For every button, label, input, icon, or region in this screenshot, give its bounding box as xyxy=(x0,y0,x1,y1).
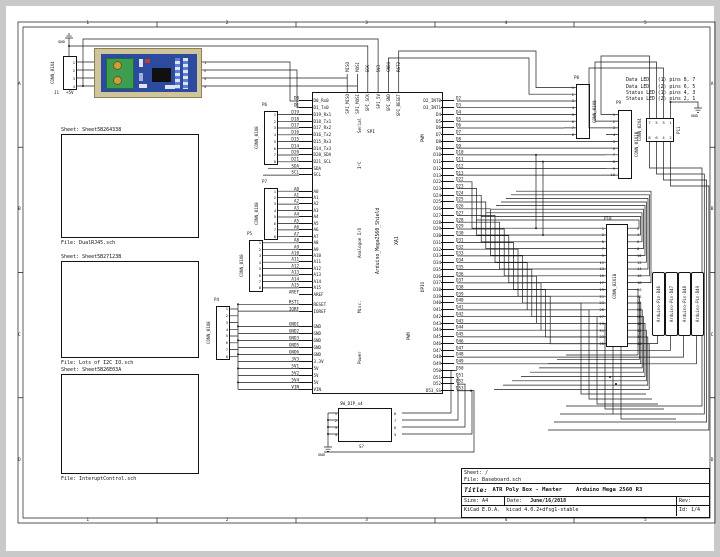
pin-number: 4 xyxy=(204,82,212,90)
pin-stub xyxy=(299,134,312,135)
pin-number: 8 xyxy=(607,158,615,165)
pin-stub xyxy=(299,340,312,341)
p7-ref: P7 xyxy=(262,180,267,185)
schematic-sheet: 12345 12345 ABCD ABCD 1234 1234 CONN_01X… xyxy=(6,6,714,551)
p11-ref: P11 xyxy=(676,118,681,142)
module-resistor-bank xyxy=(183,58,188,89)
pin-stub xyxy=(299,389,312,390)
pin-name: D1_Tx0 xyxy=(312,105,329,110)
net-label: D14 xyxy=(249,143,299,148)
net-label: D28 xyxy=(454,217,464,222)
dip-ref: S? xyxy=(359,445,364,450)
p9-pins: 12345678910 xyxy=(607,111,615,178)
net-label: D4 xyxy=(454,110,461,115)
pin-name: D32 xyxy=(404,247,441,252)
global-label-d49[interactable]: Arduino-Pin-D49 xyxy=(691,272,704,336)
pin-name: D27 xyxy=(404,213,441,218)
global-label-d47[interactable]: Arduino-Pin-D47 xyxy=(665,272,678,336)
pin-number: 2 xyxy=(220,312,228,319)
pin-stub xyxy=(299,311,312,312)
grid-row-label: D xyxy=(711,398,714,523)
pin-name: D0_Rx0 xyxy=(312,98,329,103)
tb-title-label: Title: xyxy=(464,486,487,494)
tb-rev: Rev: xyxy=(677,497,709,506)
pin-stub xyxy=(441,201,454,202)
net-label: A9 xyxy=(249,244,299,249)
net-label: D39 xyxy=(454,291,464,296)
pin-number: 18 xyxy=(637,279,645,286)
p10-ref: P10 xyxy=(604,217,612,222)
net-label: D36 xyxy=(454,271,464,276)
pin-name: A9 xyxy=(312,247,319,252)
pin-stub xyxy=(441,296,454,297)
pin-name: D53_SS xyxy=(404,388,441,393)
net-label: D47 xyxy=(454,345,464,350)
grid-col-label: 1 xyxy=(18,518,157,523)
pin-number: 3 xyxy=(607,124,615,131)
net-label: MISO xyxy=(345,62,350,72)
grid-col-label: 3 xyxy=(297,21,436,26)
pin-name: D16_Tx2 xyxy=(312,132,331,137)
p11-bottom-pins: 8642 xyxy=(646,135,674,140)
grid-col-label: 5 xyxy=(576,518,715,523)
pin-stub xyxy=(299,268,312,269)
pin-stub xyxy=(299,197,312,198)
connector-p9[interactable] xyxy=(618,110,632,179)
net-label: D29 xyxy=(454,224,464,229)
pin-name: D47 xyxy=(404,348,441,353)
pin-number: 24 xyxy=(637,300,645,307)
pin-number: 3 xyxy=(329,424,337,431)
pin-number: 2 xyxy=(607,118,615,125)
pin-number: 3 xyxy=(596,232,604,239)
pin-number: 5 xyxy=(596,238,604,245)
net-label: D16 xyxy=(249,130,299,135)
grid-row-label: A xyxy=(18,22,21,147)
pin-number: 7 xyxy=(596,245,604,252)
pin-stub xyxy=(299,255,312,256)
pin-name: 5V xyxy=(312,373,319,378)
pin-number: 3 xyxy=(67,74,75,82)
net-label: SCL xyxy=(249,170,299,175)
pin-stub xyxy=(299,354,312,355)
module-right-pin-numbers: 1234 xyxy=(204,58,212,90)
sheet-i2c-io[interactable] xyxy=(61,261,199,358)
net-label: SCK xyxy=(365,65,370,72)
pin-stub xyxy=(441,114,454,115)
pin-stub xyxy=(441,343,454,344)
pin-number: 32 xyxy=(637,327,645,334)
net-label: MOSI xyxy=(355,62,360,72)
module-part xyxy=(145,59,150,63)
net-label: D12 xyxy=(454,163,464,168)
tb-sheet: Sheet: / xyxy=(462,469,709,476)
pin-name: D21_SCL xyxy=(312,159,331,164)
pin-stub xyxy=(441,161,454,162)
grid-row-label: A xyxy=(711,22,714,147)
pin-number: 7 xyxy=(394,417,402,424)
net-label: GND3 xyxy=(249,335,299,340)
pin-stub xyxy=(299,121,312,122)
net-label: D49 xyxy=(454,359,464,364)
pin-stub xyxy=(299,274,312,275)
pin-stub xyxy=(441,269,454,270)
pin-number: 31 xyxy=(596,327,604,334)
pin-number: 11 xyxy=(596,259,604,266)
grid-rows-right: ABCD xyxy=(711,22,714,523)
arduino-analog-pins: A0A0A1A1A2A2A3A3A4A4A5A5A6A6A7A7A8A8A9A9… xyxy=(249,188,324,297)
pin-name: 3.3V xyxy=(312,359,324,364)
tb-subtitle: Arduino Mega 2560 R3 xyxy=(576,487,642,493)
dip-right-pins: 8765 xyxy=(394,410,402,438)
pin-name: D24 xyxy=(404,193,441,198)
spi-pin-names: SPI_MISOSPI_MOSISPI_SCKSPI_5VSPI_GNDSPI_… xyxy=(342,94,404,128)
pin-name: A14 xyxy=(312,279,321,284)
pin-name: D11 xyxy=(404,159,441,164)
j1-pin-numbers: 1234 xyxy=(67,58,75,90)
pin-number: 4 xyxy=(637,232,645,239)
pin-name: D33 xyxy=(404,253,441,258)
net-label: A10 xyxy=(249,251,299,256)
net-label: A1 xyxy=(249,193,299,198)
arduino-serial-pins: D0D0_Rx0D1D1_Tx0D19D19_Rx1D18D18_Tx1D17D… xyxy=(249,98,331,152)
pin-stub xyxy=(299,100,312,101)
net-label: D1 xyxy=(249,103,299,108)
pin-stub xyxy=(299,375,312,376)
grid-row-label: B xyxy=(711,147,714,272)
p8-ref: P8 xyxy=(574,76,579,81)
pin-stub xyxy=(299,361,312,362)
net-label: D19 xyxy=(249,110,299,115)
net-label: D43 xyxy=(454,318,464,323)
dip-left-pins: 1234 xyxy=(329,410,337,438)
dip-switch[interactable] xyxy=(338,408,392,442)
pin-number: 9 xyxy=(596,252,604,259)
net-label: GND4 xyxy=(386,62,391,72)
dip-value: SW_DIP_x4 xyxy=(340,402,363,407)
net-label: 5V3 xyxy=(376,65,381,72)
pin-name: A3 xyxy=(312,208,319,213)
pin-name: A13 xyxy=(312,272,321,277)
pin-stub xyxy=(299,203,312,204)
led-notes: Data LED (1) pins 8, 7Data LED (2) pins … xyxy=(626,59,695,104)
grid-col-label: 4 xyxy=(436,518,575,523)
sheet-file: File: DualRJ45.sch xyxy=(61,240,115,246)
pin-stub xyxy=(299,326,312,327)
pin-number: 4 xyxy=(607,131,615,138)
pin-number: 6 xyxy=(607,145,615,152)
pin-stub xyxy=(299,304,312,305)
pin-number: 10 xyxy=(637,252,645,259)
pin-name: D29 xyxy=(404,226,441,231)
tb-kicad: KiCad E.D.A. kicad 4.0.2+dfsg1-stable xyxy=(462,506,677,516)
pin-stub xyxy=(441,195,454,196)
pin-name: A0 xyxy=(312,189,319,194)
net-label: D25 xyxy=(454,197,464,202)
net-label: IORF xyxy=(249,306,299,311)
pin-number: 28 xyxy=(637,313,645,320)
pin-stub xyxy=(441,350,454,351)
pin-number: 4 xyxy=(566,104,574,111)
net-label: GND5 xyxy=(249,342,299,347)
pin-number: 4 xyxy=(220,326,228,333)
pin-number: 4 xyxy=(329,431,337,438)
label-text: Arduino-Pin-D46 xyxy=(656,286,661,322)
pin-stub xyxy=(441,175,454,176)
pin-stub xyxy=(441,208,454,209)
pin-name: D48 xyxy=(404,354,441,359)
pin-number: 25 xyxy=(596,306,604,313)
pin-stub xyxy=(299,382,312,383)
pin-stub xyxy=(299,229,312,230)
label-text: Arduino-Pin-D49 xyxy=(695,286,700,322)
net-label: A6 xyxy=(249,225,299,230)
pin-name: D17_Rx2 xyxy=(312,125,331,130)
net-label: D20 xyxy=(249,150,299,155)
pin-name: GND xyxy=(312,345,321,350)
j1-ref: J1 xyxy=(54,91,59,96)
p11-top-pins: 7531 xyxy=(646,120,674,125)
grid-cols-top: 12345 xyxy=(18,21,715,26)
p8-pins: 12345678 xyxy=(566,84,574,138)
pin-name: D3_INT1 xyxy=(404,105,441,110)
grid-col-label: 4 xyxy=(436,21,575,26)
sheet-name: Sheet: Sheet5B264338 xyxy=(61,127,121,133)
grid-col-label: 3 xyxy=(297,518,436,523)
pin-name: SCL xyxy=(312,172,321,177)
grid-col-label: 2 xyxy=(157,21,296,26)
pin-number: 6 xyxy=(566,118,574,125)
pin-name: VIN xyxy=(312,387,321,392)
group-misc: Misc. xyxy=(357,298,362,316)
pin-stub xyxy=(299,210,312,211)
net-label: D33 xyxy=(454,251,464,256)
net-label: A3 xyxy=(249,206,299,211)
net-label: AREF xyxy=(249,289,299,294)
note-line: Status LED (2) pins 2, 1 xyxy=(626,97,695,103)
grid-col-label: 2 xyxy=(157,518,296,523)
pin-stub xyxy=(299,347,312,348)
pin-name: D22 xyxy=(404,179,441,184)
net-label: D10 xyxy=(454,150,464,155)
sheet-interrupt-control[interactable] xyxy=(61,374,199,474)
pin-stub xyxy=(441,127,454,128)
pin-number: 17 xyxy=(596,279,604,286)
pin-number: 23 xyxy=(596,300,604,307)
pin-name: SDA xyxy=(312,166,321,171)
pin-number: 5 xyxy=(653,120,660,125)
pin-number: 7 xyxy=(646,120,653,125)
net-label: D3 xyxy=(454,103,461,108)
net-label: D8 xyxy=(454,136,461,141)
pin-stub xyxy=(299,249,312,250)
kicad-canvas: 12345 12345 ABCD ABCD 1234 1234 CONN_01X… xyxy=(0,0,720,557)
p8-value: CONN_01X8 xyxy=(592,84,597,139)
pin-name: D34 xyxy=(404,260,441,265)
pin-number: 20 xyxy=(637,286,645,293)
grid-rows-left: ABCD xyxy=(18,22,21,523)
pin-number: 1 xyxy=(607,111,615,118)
pin-number: 5 xyxy=(394,431,402,438)
tb-file: File: Baseboard.sch xyxy=(462,476,709,484)
pin-number: 8 xyxy=(646,135,653,140)
pin-name: A6 xyxy=(312,227,319,232)
pin-name: IOREF xyxy=(312,309,326,314)
grid-row-label: C xyxy=(18,273,21,398)
global-label-d46[interactable]: Arduino-Pin-D46 xyxy=(652,272,665,336)
grid-col-label: 1 xyxy=(18,21,157,26)
net-label: D41 xyxy=(454,305,464,310)
pin-number: 22 xyxy=(637,293,645,300)
connector-p10[interactable] xyxy=(606,224,628,347)
module-resistor-bank xyxy=(175,58,180,89)
rs485-module-image[interactable] xyxy=(94,48,202,98)
pin-number: 1 xyxy=(566,84,574,91)
net-label: D0 xyxy=(249,96,299,101)
net-label: D31 xyxy=(454,237,464,242)
spi-group-label: SPI xyxy=(366,130,376,135)
net-label: D2 xyxy=(454,96,461,101)
pin-name: D28 xyxy=(404,220,441,225)
pin-stub xyxy=(299,168,312,169)
pin-stub xyxy=(441,323,454,324)
pin-stub xyxy=(441,215,454,216)
sheet-name: Sheet: Sheet5B27123B xyxy=(61,254,121,260)
module-part xyxy=(165,85,175,89)
pin-name: D10 xyxy=(404,152,441,157)
pin-number: 26 xyxy=(637,306,645,313)
pin-stub xyxy=(441,242,454,243)
pin-number: 30 xyxy=(637,320,645,327)
pin-number: 3 xyxy=(566,98,574,105)
pin-number: 9 xyxy=(607,165,615,172)
pin-number: 6 xyxy=(637,238,645,245)
pin-stub xyxy=(441,363,454,364)
pin-number: 29 xyxy=(596,320,604,327)
pin-stub xyxy=(441,309,454,310)
pin-name: D4 xyxy=(404,112,441,117)
pin-stub xyxy=(441,383,454,384)
pin-number: 14 xyxy=(637,266,645,273)
pin-number: 8 xyxy=(637,245,645,252)
net-label: A13 xyxy=(249,270,299,275)
net-label: D50 xyxy=(454,365,464,370)
pin-number: 3 xyxy=(660,120,667,125)
net-label: D13 xyxy=(454,170,464,175)
connector-p8[interactable] xyxy=(576,84,590,139)
group-pwm2: PWM xyxy=(406,326,411,346)
pin-name: A1 xyxy=(312,195,319,200)
pin-stub xyxy=(441,168,454,169)
pin-name: RESET xyxy=(312,302,326,307)
net-label: A4 xyxy=(249,212,299,217)
pin-name: D25 xyxy=(404,199,441,204)
gnd-label: GND xyxy=(318,453,325,457)
arduino-right-pins: D2_INT0D2D3_INT1D3D4D4D5D5D6D6D7D7D8D8D9… xyxy=(404,98,464,394)
pin-number: 34 xyxy=(637,334,645,341)
pin-name: D13 xyxy=(404,173,441,178)
net-label: D6 xyxy=(454,123,461,128)
net-label: GND1 xyxy=(249,321,299,326)
net-label: D48 xyxy=(454,352,464,357)
pin-stub xyxy=(299,161,312,162)
pin-stub xyxy=(441,316,454,317)
group-serial: Serial xyxy=(357,106,362,144)
p4-pins: 12345678 xyxy=(220,306,228,360)
pin-stub xyxy=(441,370,454,371)
pin-number: 5 xyxy=(220,333,228,340)
pin-stub xyxy=(299,127,312,128)
net-label: A5 xyxy=(249,218,299,223)
arduino-ref: XA1 xyxy=(395,221,400,261)
pin-number: 2 xyxy=(566,91,574,98)
net-label: D42 xyxy=(454,312,464,317)
pin-stub xyxy=(441,228,454,229)
pin-name: SPI_5V xyxy=(376,94,381,109)
pin-name: D20_SDA xyxy=(312,152,331,157)
j1-value: CONN_01X4 xyxy=(50,56,55,90)
module-part xyxy=(139,59,143,67)
pin-name: GND xyxy=(312,331,321,336)
p4-value: CONN_01X8 xyxy=(206,306,211,360)
net-label: D35 xyxy=(454,264,464,269)
net-label: D18 xyxy=(249,116,299,121)
gnd-label: GND xyxy=(691,114,698,118)
pin-number: 15 xyxy=(596,272,604,279)
pin-number: 6 xyxy=(394,424,402,431)
group-i2c: I²C xyxy=(357,154,362,176)
terminal-screw xyxy=(113,61,122,70)
group-pwm: PWM xyxy=(420,124,425,152)
pin-stub xyxy=(441,302,454,303)
plus5v-label: +5V xyxy=(66,91,74,96)
pin-stub xyxy=(441,336,454,337)
pin-name: D26 xyxy=(404,206,441,211)
grid-row-label: C xyxy=(711,273,714,398)
net-label: GND6 xyxy=(249,349,299,354)
pin-stub xyxy=(299,281,312,282)
pin-number: 4 xyxy=(67,82,75,90)
p10-left-pins: 1357911131517192123252729313335 xyxy=(596,225,604,347)
pin-stub xyxy=(299,174,312,175)
pin-name: D12 xyxy=(404,166,441,171)
pin-name: D41 xyxy=(404,307,441,312)
pin-name: A4 xyxy=(312,214,319,219)
pin-stub xyxy=(299,191,312,192)
pin-name: D23 xyxy=(404,186,441,191)
net-label: D34 xyxy=(454,258,464,263)
tb-date-label: Date: xyxy=(507,498,522,505)
pin-stub xyxy=(441,100,454,101)
spi-net-labels: MISOMOSISCK5V3GND4RST2 xyxy=(342,42,404,72)
pin-number: 33 xyxy=(596,334,604,341)
pin-number: 10 xyxy=(607,172,615,179)
sheet-file: File: InteruptControl.sch xyxy=(61,476,136,482)
tb-title: ATR Poly Box - Master xyxy=(492,487,562,493)
p11-value: CONN_02X4 xyxy=(637,115,642,145)
global-label-d48[interactable]: Arduino-Pin-D48 xyxy=(678,272,691,336)
net-label: A15 xyxy=(249,283,299,288)
net-label: D26 xyxy=(454,204,464,209)
pin-stub xyxy=(299,154,312,155)
pin-name: D42 xyxy=(404,314,441,319)
pin-name: D43 xyxy=(404,321,441,326)
group-power: Power xyxy=(357,342,362,374)
gnd-label: GND xyxy=(58,40,65,44)
pin-number: 2 xyxy=(667,135,674,140)
pin-name: A11 xyxy=(312,259,321,264)
sheet-dualrj45[interactable] xyxy=(61,134,199,238)
